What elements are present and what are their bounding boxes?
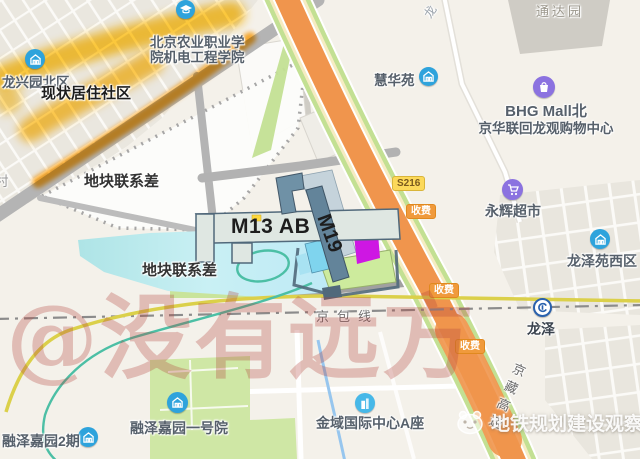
- estate-icon[interactable]: [167, 392, 188, 413]
- label-village-partial: 村: [0, 170, 9, 190]
- annotation-parcel-gap-2: 地块联系差: [142, 259, 217, 280]
- office-icon[interactable]: [355, 393, 375, 413]
- poi-label-rongze-no1[interactable]: 融泽嘉园一号院: [130, 418, 228, 438]
- road-shield-s216: S216: [392, 176, 425, 191]
- school-icon[interactable]: [176, 0, 195, 19]
- map-screenshot: 村 龙兴园北区 现状居住社区 北京农业职业学 院机电工程学院 通达园 龙 慧华苑…: [0, 0, 640, 459]
- poi-label-college-line2[interactable]: 院机电工程学院: [150, 46, 245, 66]
- m13-stub-left: [196, 214, 214, 262]
- m13-stub-south: [232, 243, 252, 263]
- estate-icon[interactable]: [419, 67, 438, 86]
- poi-label-bhg-line2[interactable]: 京华联回龙观购物中心: [472, 117, 620, 137]
- poi-label-jinyu[interactable]: 金域国际中心A座: [316, 413, 424, 433]
- estate-icon[interactable]: [78, 427, 98, 447]
- mall-icon[interactable]: [533, 76, 555, 98]
- mascot-logo: [454, 408, 486, 436]
- station-label-longze[interactable]: 龙泽: [527, 319, 555, 339]
- estate-icon[interactable]: [590, 229, 610, 249]
- poi-label-rongze-phase2[interactable]: 融泽嘉园2期: [2, 431, 80, 451]
- annotation-parcel-gap-1: 地块联系差: [84, 170, 159, 191]
- toll-badge-1: 收费: [406, 204, 436, 219]
- watermark-center: @没有远方: [6, 292, 476, 384]
- poi-label-yonghui[interactable]: 永辉超市: [485, 201, 541, 221]
- annotation-m13-station: M13 AB: [231, 215, 310, 239]
- watermark-corner: 地铁规划建设观察: [454, 408, 640, 436]
- annotation-status-community: 现状居住社区: [41, 82, 131, 103]
- beijing-subway-logo[interactable]: [533, 298, 552, 317]
- poi-label-longzeyuan-west[interactable]: 龙泽苑西区: [567, 251, 637, 271]
- supermarket-icon[interactable]: [502, 179, 523, 200]
- poi-label-tongdayuan[interactable]: 通达园: [536, 1, 584, 20]
- estate-icon[interactable]: [25, 49, 45, 69]
- watermark-corner-text: 地铁规划建设观察: [491, 409, 640, 436]
- poi-label-huihuayuan[interactable]: 慧华苑: [374, 69, 415, 89]
